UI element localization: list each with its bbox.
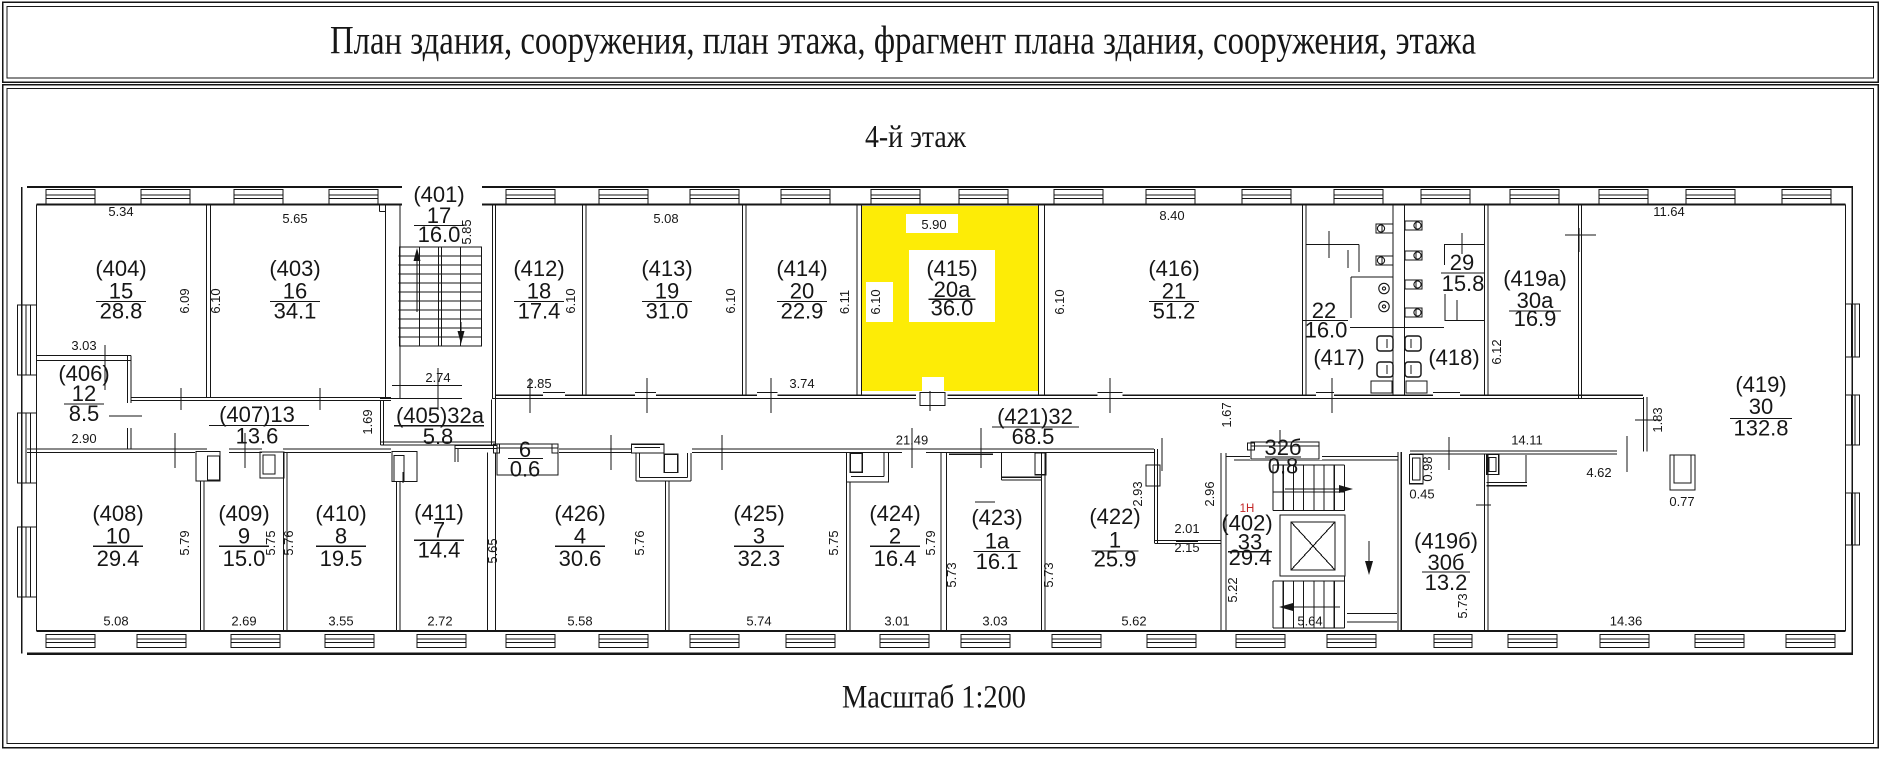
svg-text:6.10: 6.10 [868, 289, 883, 314]
svg-text:6.10: 6.10 [723, 288, 738, 313]
svg-text:29.4: 29.4 [97, 546, 140, 571]
svg-text:16.4: 16.4 [874, 546, 917, 571]
svg-text:4: 4 [574, 524, 586, 549]
svg-text:25.9: 25.9 [1094, 547, 1137, 572]
svg-text:5.22: 5.22 [1225, 577, 1240, 602]
svg-text:(416): (416) [1148, 256, 1199, 281]
svg-text:16.0: 16.0 [418, 222, 461, 247]
svg-text:4.62: 4.62 [1586, 465, 1611, 480]
svg-text:6.10: 6.10 [1052, 289, 1067, 314]
svg-text:28.8: 28.8 [100, 299, 143, 324]
svg-text:(413): (413) [641, 256, 692, 281]
svg-text:1Н: 1Н [1240, 503, 1255, 515]
svg-text:3.74: 3.74 [789, 376, 814, 391]
svg-text:16.1: 16.1 [976, 549, 1019, 574]
svg-text:2: 2 [889, 524, 901, 549]
svg-text:5.90: 5.90 [921, 217, 946, 232]
svg-text:(422): (422) [1089, 504, 1140, 529]
svg-text:10: 10 [106, 524, 130, 549]
svg-text:0.98: 0.98 [1420, 456, 1435, 481]
svg-text:0.77: 0.77 [1669, 494, 1694, 509]
svg-text:Масштаб 1:200: Масштаб 1:200 [842, 679, 1026, 715]
svg-text:2.01: 2.01 [1174, 521, 1199, 536]
svg-text:2.74: 2.74 [425, 370, 450, 385]
svg-text:1.69: 1.69 [360, 409, 375, 434]
svg-text:68.5: 68.5 [1012, 424, 1055, 449]
svg-text:29.4: 29.4 [1229, 545, 1272, 570]
svg-text:132.8: 132.8 [1733, 416, 1788, 441]
svg-text:2.96: 2.96 [1202, 481, 1217, 506]
svg-text:(409): (409) [218, 501, 269, 526]
svg-text:5.75: 5.75 [263, 530, 278, 555]
svg-text:34.1: 34.1 [274, 299, 317, 324]
svg-text:5.73: 5.73 [944, 562, 959, 587]
svg-text:8: 8 [335, 524, 347, 549]
svg-text:5.73: 5.73 [1041, 562, 1056, 587]
svg-text:(425): (425) [733, 501, 784, 526]
svg-text:14.36: 14.36 [1610, 614, 1643, 629]
svg-text:51.2: 51.2 [1153, 299, 1196, 324]
svg-text:3.01: 3.01 [884, 614, 909, 629]
svg-text:2.72: 2.72 [427, 614, 452, 629]
svg-text:0.8: 0.8 [1268, 454, 1299, 479]
svg-text:2.90: 2.90 [71, 431, 96, 446]
svg-text:5.73: 5.73 [1455, 593, 1470, 618]
svg-text:3.03: 3.03 [982, 614, 1007, 629]
svg-text:(408): (408) [92, 501, 143, 526]
svg-text:1.83: 1.83 [1650, 407, 1665, 432]
svg-text:5.79: 5.79 [177, 530, 192, 555]
svg-text:3: 3 [753, 524, 765, 549]
svg-text:(423): (423) [971, 505, 1022, 530]
svg-text:5.62: 5.62 [1121, 614, 1146, 629]
svg-text:План здания, сооружения, план: План здания, сооружения, план этажа, фра… [330, 17, 1476, 62]
svg-text:21.49: 21.49 [896, 433, 929, 448]
svg-text:0.45: 0.45 [1409, 487, 1434, 502]
svg-text:8.40: 8.40 [1159, 208, 1184, 223]
svg-text:2.69: 2.69 [231, 614, 256, 629]
svg-text:(426): (426) [554, 501, 605, 526]
svg-text:5.76: 5.76 [281, 530, 296, 555]
svg-text:(403): (403) [269, 256, 320, 281]
svg-text:16.0: 16.0 [1305, 318, 1348, 343]
svg-text:32.3: 32.3 [738, 546, 781, 571]
svg-text:11.64: 11.64 [1653, 204, 1685, 219]
svg-text:15.0: 15.0 [223, 546, 266, 571]
svg-text:6.12: 6.12 [1489, 339, 1504, 364]
svg-text:5.79: 5.79 [923, 530, 938, 555]
svg-text:14.11: 14.11 [1511, 433, 1543, 448]
svg-text:0.6: 0.6 [510, 457, 541, 482]
svg-text:6.10: 6.10 [563, 288, 578, 313]
svg-text:19.5: 19.5 [320, 546, 363, 571]
svg-text:(412): (412) [513, 256, 564, 281]
svg-text:2.85: 2.85 [526, 376, 551, 391]
svg-text:14.4: 14.4 [418, 538, 461, 563]
svg-text:4-й этаж: 4-й этаж [865, 120, 966, 154]
svg-text:8.5: 8.5 [69, 401, 100, 426]
svg-text:16.9: 16.9 [1514, 306, 1557, 331]
svg-text:(424): (424) [869, 501, 920, 526]
svg-text:5.74: 5.74 [746, 614, 771, 629]
svg-text:(404): (404) [95, 256, 146, 281]
svg-text:(417): (417) [1313, 345, 1364, 370]
svg-text:5.65: 5.65 [485, 538, 500, 563]
svg-text:5.34: 5.34 [108, 204, 133, 219]
svg-text:17.4: 17.4 [518, 299, 561, 324]
svg-text:(418): (418) [1428, 345, 1479, 370]
svg-text:36.0: 36.0 [931, 296, 974, 321]
svg-text:3.03: 3.03 [71, 338, 96, 353]
svg-text:(410): (410) [315, 501, 366, 526]
svg-text:13.6: 13.6 [236, 424, 279, 449]
svg-text:(414): (414) [776, 256, 827, 281]
svg-text:3.55: 3.55 [328, 614, 353, 629]
svg-text:6.10: 6.10 [208, 288, 223, 313]
svg-text:5.65: 5.65 [282, 211, 307, 226]
svg-text:30.6: 30.6 [559, 546, 602, 571]
svg-text:9: 9 [238, 524, 250, 549]
svg-text:22.9: 22.9 [781, 299, 824, 324]
svg-text:5.85: 5.85 [459, 219, 474, 244]
svg-text:6.11: 6.11 [837, 290, 852, 314]
svg-text:2.93: 2.93 [1130, 481, 1145, 506]
svg-text:5.08: 5.08 [653, 211, 678, 226]
svg-text:2.15: 2.15 [1174, 540, 1199, 555]
svg-text:5.58: 5.58 [567, 614, 592, 629]
svg-text:6.09: 6.09 [177, 288, 192, 313]
svg-text:15.8: 15.8 [1442, 271, 1485, 296]
svg-text:5.76: 5.76 [632, 530, 647, 555]
svg-text:13.2: 13.2 [1425, 570, 1468, 595]
svg-text:31.0: 31.0 [646, 299, 689, 324]
svg-text:1.67: 1.67 [1219, 402, 1234, 427]
svg-text:5.8: 5.8 [423, 424, 454, 449]
svg-text:5.64: 5.64 [1297, 614, 1322, 629]
svg-text:5.08: 5.08 [103, 614, 128, 629]
svg-text:5.75: 5.75 [826, 530, 841, 555]
